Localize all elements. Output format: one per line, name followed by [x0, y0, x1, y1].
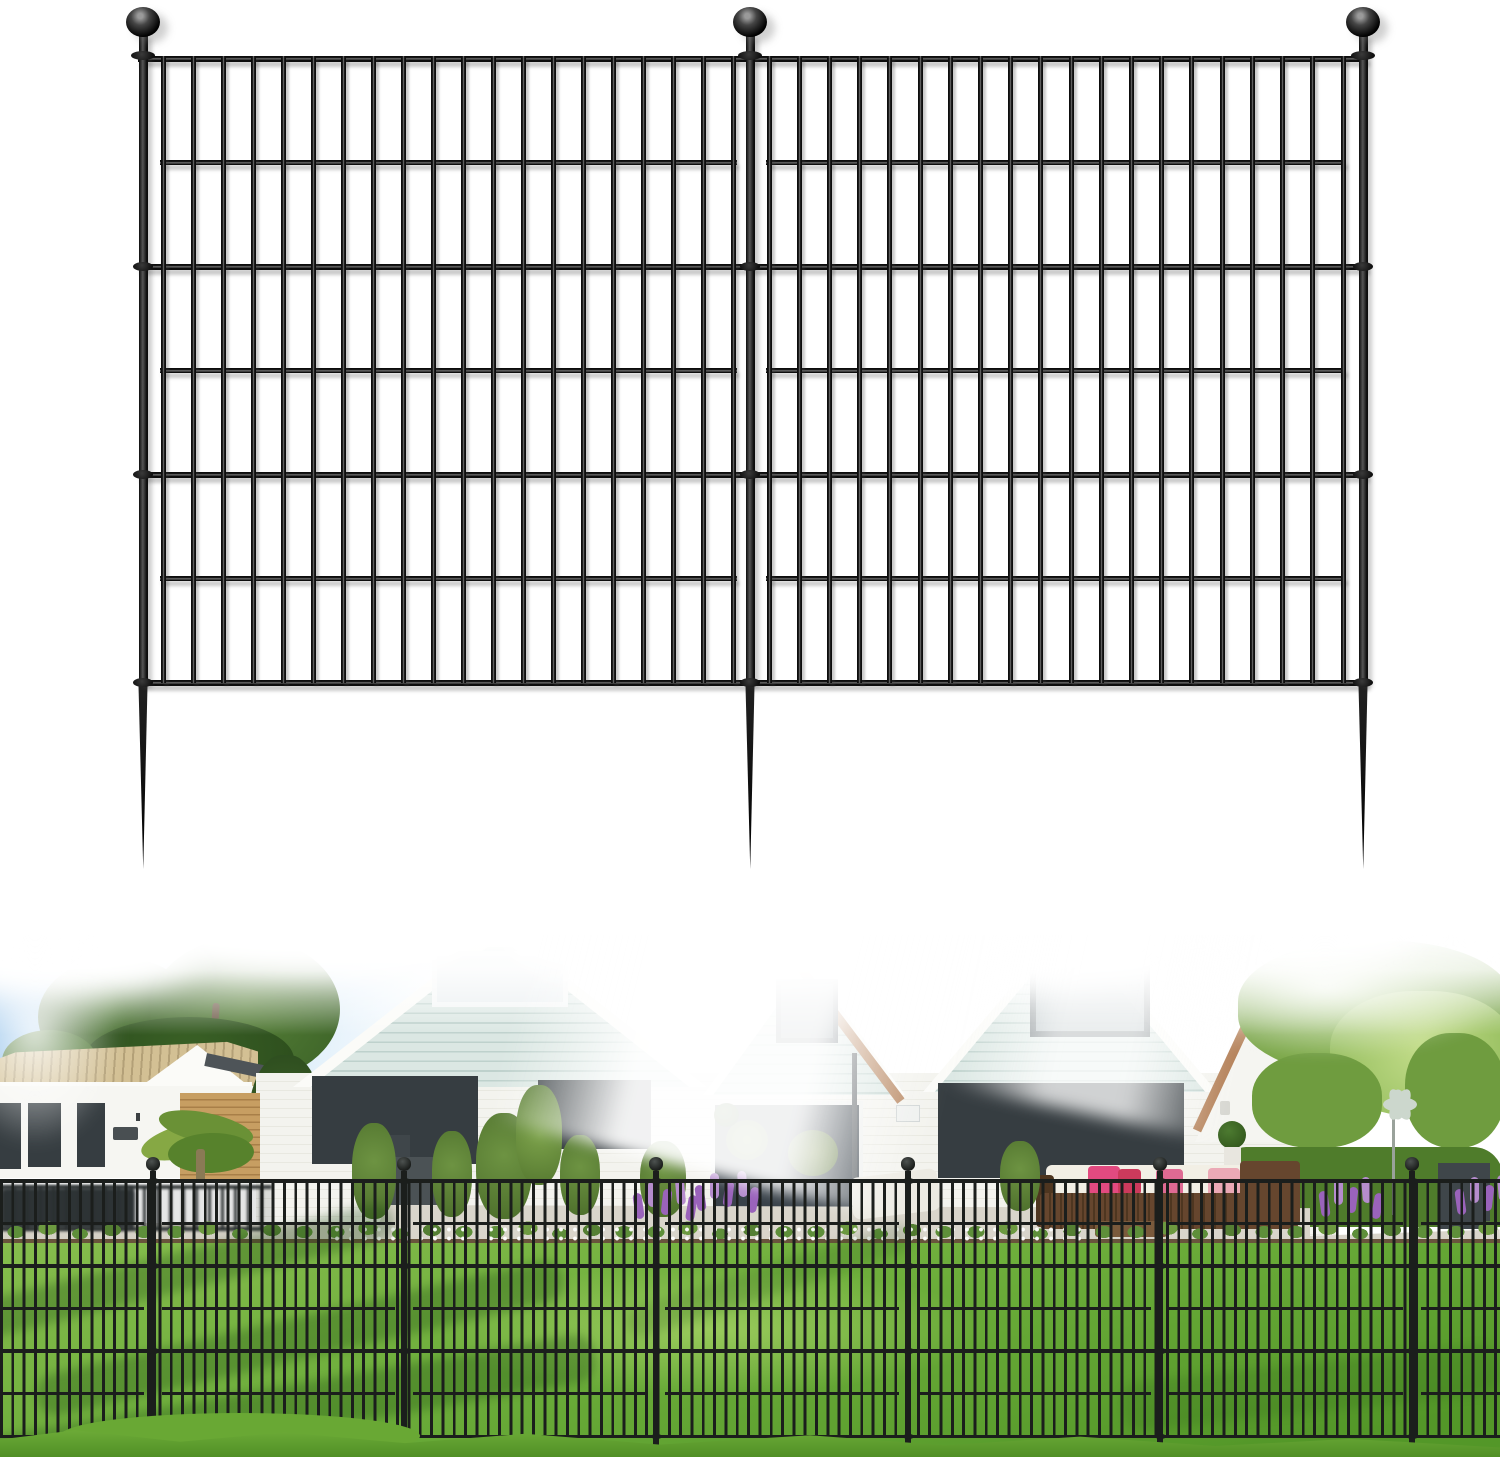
- post-collar: [148, 1348, 159, 1354]
- fence-bar: [221, 56, 226, 683]
- fence-bar: [281, 56, 286, 683]
- post-collar: [148, 1178, 159, 1184]
- installed-fence: [0, 935, 1500, 1457]
- post-collar: [1407, 1263, 1418, 1269]
- post-collar: [651, 1263, 662, 1269]
- fence-bar: [491, 56, 496, 683]
- post-collar: [651, 1178, 662, 1184]
- post-collar: [131, 51, 155, 60]
- fence-bar: [857, 56, 862, 683]
- fence-bar: [551, 56, 556, 683]
- post-collar: [903, 1178, 914, 1184]
- post-collar: [399, 1348, 410, 1354]
- ball-finial: [397, 1157, 411, 1170]
- post-collar: [740, 262, 760, 271]
- post-collar: [1407, 1434, 1418, 1440]
- post-collar: [1407, 1178, 1418, 1184]
- ball-finial: [649, 1157, 663, 1170]
- fence-bar: [767, 56, 772, 683]
- fence-bar: [1189, 56, 1194, 683]
- fence-bar: [827, 56, 832, 683]
- post-collar: [903, 1263, 914, 1269]
- fence-post: [150, 1171, 157, 1445]
- ground-spike: [137, 683, 149, 869]
- fence-bar: [1220, 56, 1225, 683]
- fence-post: [1409, 1171, 1416, 1445]
- fence-post: [139, 34, 148, 684]
- post-collar: [133, 678, 153, 687]
- product-diagram: [0, 0, 1500, 935]
- fence-bar: [948, 56, 953, 683]
- ball-finial: [126, 7, 160, 37]
- fence-bar: [341, 56, 346, 683]
- fence-rail-inset: [160, 160, 737, 165]
- fence-post: [1359, 34, 1368, 684]
- fence-bar: [1129, 56, 1134, 683]
- fence-bar: [978, 56, 983, 683]
- fence-bar: [521, 56, 526, 683]
- fence-post: [1157, 1171, 1164, 1445]
- fence-bar: [1099, 56, 1104, 683]
- ball-finial: [1346, 7, 1380, 37]
- fence-bar: [641, 56, 646, 683]
- fence-bar: [251, 56, 256, 683]
- post-collar: [1155, 1178, 1166, 1184]
- fence-bar: [1280, 56, 1285, 683]
- fence-bar: [1159, 56, 1164, 683]
- fence-bar: [581, 56, 586, 683]
- fence-rail-inset: [160, 368, 737, 373]
- fence-bar: [918, 56, 923, 683]
- post-collar: [133, 470, 153, 479]
- fence-bar: [671, 56, 676, 683]
- post-collar: [1353, 470, 1373, 479]
- ball-finial: [146, 1157, 160, 1170]
- fence-post: [746, 34, 755, 684]
- fence-bar: [371, 56, 376, 683]
- fence-bar: [1069, 56, 1074, 683]
- fence-bar: [1250, 56, 1255, 683]
- product-image: [0, 0, 1500, 1457]
- post-collar: [1351, 51, 1375, 60]
- fence-bar: [431, 56, 436, 683]
- fence-bar: [311, 56, 316, 683]
- fence-bar: [1008, 56, 1013, 683]
- fence-rail-inset: [766, 160, 1346, 165]
- lifestyle-photo: [0, 935, 1500, 1457]
- post-collar: [738, 51, 762, 60]
- ball-finial: [1153, 1157, 1167, 1170]
- fence-bar: [161, 56, 166, 683]
- fence-bars: [0, 1181, 1500, 1437]
- post-collar: [1155, 1434, 1166, 1440]
- post-collar: [1155, 1263, 1166, 1269]
- post-collar: [903, 1434, 914, 1440]
- fence-rail-inset: [160, 576, 737, 581]
- fence-post: [401, 1171, 408, 1445]
- post-collar: [133, 262, 153, 271]
- fence-rail-inset: [766, 368, 1346, 373]
- fence-bar: [887, 56, 892, 683]
- fence-bar: [1038, 56, 1043, 683]
- fence-bar: [797, 56, 802, 683]
- post-collar: [651, 1434, 662, 1440]
- fence-bar: [731, 56, 736, 683]
- post-collar: [651, 1348, 662, 1354]
- post-collar: [1155, 1348, 1166, 1354]
- post-collar: [740, 678, 760, 687]
- post-collar: [148, 1263, 159, 1269]
- ball-finial: [1405, 1157, 1419, 1170]
- fence-bar: [461, 56, 466, 683]
- post-collar: [1407, 1348, 1418, 1354]
- post-collar: [1353, 678, 1373, 687]
- post-collar: [1353, 262, 1373, 271]
- ball-finial: [901, 1157, 915, 1170]
- fence-bar: [1310, 56, 1315, 683]
- fence-bar: [701, 56, 706, 683]
- post-collar: [740, 470, 760, 479]
- fence-post: [653, 1171, 660, 1445]
- ground-spike: [744, 683, 756, 869]
- post-collar: [399, 1178, 410, 1184]
- ground-spike: [1357, 683, 1369, 869]
- fence-rail-inset: [766, 576, 1346, 581]
- fence-bar: [401, 56, 406, 683]
- fence-bar: [191, 56, 196, 683]
- fence-bar: [1341, 56, 1346, 683]
- post-collar: [399, 1263, 410, 1269]
- post-collar: [903, 1348, 914, 1354]
- ball-finial: [733, 7, 767, 37]
- fence-bar: [611, 56, 616, 683]
- fence-post: [905, 1171, 912, 1445]
